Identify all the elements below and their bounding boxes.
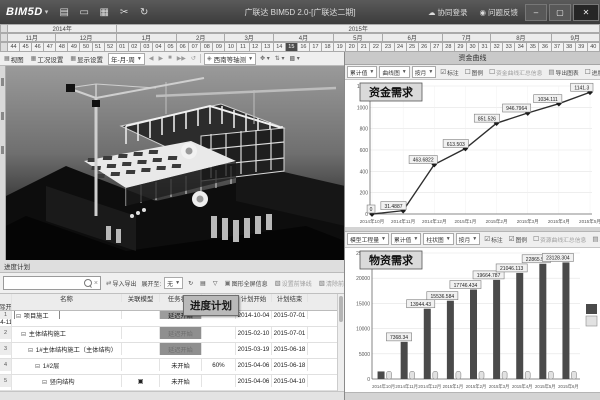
timeline-week-cell[interactable]: 20 (346, 42, 358, 52)
tree-collapse-icon[interactable]: ⊟ (42, 380, 47, 386)
svg-text:946.7964: 946.7964 (506, 107, 527, 113)
summary-checkbox[interactable]: ☐资金曲线汇总信息 (487, 67, 544, 78)
timeline-week-cell[interactable]: 18 (322, 42, 334, 52)
svg-text:1141.3: 1141.3 (574, 86, 589, 92)
timeline-week-cell[interactable]: 49 (68, 42, 80, 52)
timeline-week-cell[interactable]: 16 (298, 42, 310, 52)
timeline-months-cell[interactable]: 4月 (274, 33, 334, 42)
header-rownum (0, 294, 12, 302)
timeline-week-cell[interactable]: 45 (20, 42, 32, 52)
status-badge: 未开始 (160, 359, 202, 371)
legend-checkbox[interactable]: ☑图例 (507, 234, 529, 245)
timeline-week-cell[interactable]: 50 (80, 42, 92, 52)
playback-controls: ◀▶■▶▶↺ (148, 55, 197, 62)
timeline-week-cell[interactable]: 06 (177, 42, 189, 52)
svg-text:15536.584: 15536.584 (431, 294, 455, 300)
chevron-down-icon: ▼ (175, 280, 180, 286)
timeline-week-cell[interactable]: 47 (44, 42, 56, 52)
svg-text:2015年4月: 2015年4月 (548, 218, 570, 225)
expand-label: 展开至: (141, 279, 161, 288)
clear-search-icon[interactable]: × (94, 280, 98, 287)
actual-start-cell (0, 339, 12, 342)
task-name-cell: ⊟ 竖向结构 (12, 375, 122, 387)
status-badge: 延迟开始 (160, 343, 202, 355)
timeline-week-cell[interactable]: 40 (588, 42, 600, 52)
table-horizontal-scrollbar[interactable] (0, 391, 344, 400)
playback-first-icon[interactable]: ◀ (148, 55, 155, 62)
timeline-months-cell[interactable]: 1月 (117, 33, 177, 42)
export-chart-button[interactable]: ▤导出图表 (590, 234, 600, 245)
column-header[interactable]: 计划开始 (236, 294, 272, 302)
filter-button[interactable]: ▽ (211, 279, 220, 288)
print-button[interactable]: ▤ (198, 279, 208, 288)
progress-toggle[interactable]: ☐进度 (583, 67, 600, 78)
value-mode-dropdown[interactable]: 累计值▼ (391, 233, 421, 245)
expand-dropdown[interactable]: 无▼ (164, 277, 183, 289)
checkbox-empty-icon: ☐ (465, 68, 471, 76)
titlebar: BIM5D ▾ ▤▭▦✂↻ 广联达 BIM5D 2.0-[广联达二期] ☁ 协同… (0, 0, 600, 24)
task-name: ⊟ 主体结构施工 (21, 329, 66, 338)
gear-icon: ▦ (31, 55, 37, 62)
timeline-week-cell[interactable]: 11 (237, 42, 249, 52)
funds-panel-header[interactable]: 资金曲线 (345, 52, 600, 65)
plan-start-cell: 2015-02-10 (236, 327, 272, 339)
timeline-months-cell[interactable]: 9月 (552, 33, 600, 42)
svg-text:0: 0 (370, 208, 373, 214)
extra-cell: 60% (202, 359, 236, 371)
actual-start-cell (0, 387, 12, 390)
svg-text:1034.111: 1034.111 (538, 97, 558, 103)
tree-collapse-icon[interactable]: ⊟ (35, 364, 40, 370)
plan-start-cell: 2014-10-04 (236, 311, 272, 319)
timeline-week-cell[interactable]: 37 (552, 42, 564, 52)
checkbox-empty-icon: ☐ (585, 68, 591, 76)
svg-text:800: 800 (360, 127, 369, 133)
frontline-clear-icon: ▧ (319, 279, 325, 287)
export-chart-button[interactable]: ▤导出图表 (546, 67, 580, 78)
extra-cell (202, 375, 236, 387)
timeline-edge (0, 24, 8, 33)
viewport-tool-group: ✥ ▾⇅ ▾▩ ▾ (259, 55, 301, 62)
timeline-week-cell[interactable]: 48 (56, 42, 68, 52)
timeline-edge (0, 42, 8, 52)
chevron-down-icon: ▼ (248, 56, 253, 62)
materials-toolbar: 模型工程量▼ 累计值▼ 柱状图▼ 按月▼ ☑标注 ☑图例 ☐资源曲线汇总信息 ▤… (345, 232, 600, 248)
model-link-cell (122, 359, 160, 371)
timeline-week-cell[interactable]: 05 (165, 42, 177, 52)
new-file-icon[interactable]: ▤ (56, 4, 72, 20)
column-header[interactable]: 关联模型 (122, 294, 160, 302)
schedule-table: 名称关联模型任务状态计划开始计划结束实际开始1⊟ 项目施工延迟开始2014-10… (0, 294, 337, 391)
svg-text:13944.43: 13944.43 (410, 302, 431, 308)
tree-collapse-icon[interactable]: ⊟ (16, 314, 21, 320)
import-export-button[interactable]: ⇄导入导出 (104, 278, 138, 289)
viewport-tool-1-icon[interactable]: ✥ ▾ (259, 55, 271, 62)
timeline-week-cell[interactable]: 39 (576, 42, 588, 52)
table-vertical-scrollbar[interactable] (337, 294, 344, 391)
dragged-column-ghost: 进度计划 (183, 295, 239, 316)
timeline-week-cell[interactable]: 33 (503, 42, 515, 52)
plan-end-cell: 2015-07-01 (272, 311, 308, 319)
extra-cell (202, 343, 236, 355)
timeline-week-cell[interactable]: 14 (274, 42, 286, 52)
extra-cell (202, 327, 236, 339)
timeline-week-cell[interactable]: 36 (539, 42, 551, 52)
timeline-week-cell[interactable]: 01 (117, 42, 129, 52)
table-row[interactable]: 1⊟ 项目施工延迟开始2014-10-042015-07-012014-11-0… (0, 311, 337, 327)
period-dropdown[interactable]: 按月▼ (412, 66, 437, 78)
timeline-week-cell[interactable]: 44 (8, 42, 20, 52)
timeline-week-cell[interactable]: 09 (213, 42, 225, 52)
model-link-cell: ▣ (122, 375, 160, 387)
svg-text:2015年2月: 2015年2月 (466, 383, 487, 390)
mark-checkbox[interactable]: ☑标注 (482, 234, 504, 245)
task-name-cell: ⊟ 主体结构施工 (12, 327, 122, 339)
timeline-week-cell[interactable]: 30 (467, 42, 479, 52)
svg-text:2014年11月: 2014年11月 (395, 383, 418, 390)
status-badge: 延迟开始 (160, 327, 202, 339)
timeline-edge (0, 33, 8, 42)
bim5d-window: BIM5D ▾ ▤▭▦✂↻ 广联达 BIM5D 2.0-[广联达二期] ☁ 协同… (0, 0, 600, 400)
timeline-week-cell[interactable]: 25 (407, 42, 419, 52)
timeline-months-cell[interactable]: 2月 (177, 33, 225, 42)
task-name: ⊟ 1#主体结构施工（主体结构） (28, 345, 117, 354)
timeline-months-cell[interactable]: 11月 (8, 33, 56, 42)
svg-text:2015年1月: 2015年1月 (443, 383, 464, 390)
svg-text:2015年2月: 2015年2月 (486, 218, 508, 225)
table-row[interactable]: 5⊟ 竖向结构▣未开始2015-04-062015-04-10 (0, 375, 337, 391)
period-dropdown[interactable]: 按月▼ (456, 233, 481, 245)
timeline-week-cell[interactable]: 26 (419, 42, 431, 52)
timeline-week-cell[interactable]: 27 (431, 42, 443, 52)
timeline-week-cell[interactable]: 02 (129, 42, 141, 52)
svg-text:20000: 20000 (356, 276, 370, 282)
timeline-week-cell[interactable]: 03 (141, 42, 153, 52)
timeline-week-cell[interactable]: 31 (479, 42, 491, 52)
svg-text:23128.304: 23128.304 (546, 255, 570, 261)
table-row[interactable]: 4⊟ 1#2层未开始60%2015-04-062015-06-18 (0, 359, 337, 375)
actual-start-cell (0, 371, 12, 374)
model-link-cell (122, 311, 160, 319)
funds-toolbar: 累计值▼ 曲线图▼ 按月▼ ☑标注 ☐图例 ☐资金曲线汇总信息 ▤导出图表 ☐进… (345, 65, 600, 81)
close-button[interactable]: ✕ (573, 4, 599, 21)
timeline-week-cell[interactable]: 08 (201, 42, 213, 52)
row-number: 5 (0, 375, 12, 387)
task-name: ⊟ 1#2层 (35, 361, 59, 370)
funds-demand-chart: 0200400600800100012002014年10月2014年11月201… (345, 80, 600, 227)
plan-end-cell: 2015-06-18 (272, 359, 308, 371)
table-row[interactable]: 3⊟ 1#主体结构施工（主体结构）延迟开始2015-03-192015-06-1… (0, 343, 337, 359)
plan-end-cell: 2015-04-10 (272, 375, 308, 387)
simulation-toolbar: ▦视图 ▦工况设置 ▦显示设置 年-月-周▼ ◀▶■▶▶↺ ◈ 西南等轴测 ▼ … (0, 52, 344, 66)
mark-checkbox[interactable]: ☑标注 (438, 67, 460, 78)
model-link-cell (122, 327, 160, 339)
task-name-cell: ⊟ 1#2层 (12, 359, 122, 371)
link-icon: ▣ (224, 279, 230, 287)
actual-start-cell (0, 355, 12, 358)
svg-text:21046.113: 21046.113 (500, 266, 523, 272)
status-badge: 未开始 (160, 375, 202, 387)
svg-text:1000: 1000 (357, 106, 368, 112)
task-name: ⊟ 项目施工 (14, 311, 60, 319)
svg-text:2015年3月: 2015年3月 (517, 218, 539, 225)
set-frontline-button[interactable]: ▧设置前锋线 (273, 278, 314, 289)
legend-checkbox[interactable]: ☐图例 (463, 67, 485, 78)
search-input[interactable] (4, 277, 82, 289)
svg-text:851.526: 851.526 (478, 117, 496, 123)
tree-collapse-icon[interactable]: ⊟ (21, 332, 26, 338)
timeline-months-cell[interactable]: 6月 (383, 33, 443, 42)
svg-text:613.503: 613.503 (447, 142, 465, 148)
svg-text:19664.787: 19664.787 (477, 273, 501, 279)
compass-icon: ◈ (207, 55, 212, 62)
plan-start-cell: 2015-04-06 (236, 359, 272, 371)
task-name: ⊟ 竖向结构 (42, 377, 75, 386)
timeline-week-cell[interactable]: 13 (262, 42, 274, 52)
plan-start-cell: 2015-04-06 (236, 375, 272, 387)
timeline-months-cell[interactable]: 5月 (334, 33, 382, 42)
minimize-button[interactable]: – (525, 4, 547, 21)
schedule-toolbar: × ⇄导入导出 展开至: 无▼ ↻ ▤ ▽ ▣图形全屏信息 ▧设置前锋线 ▧清除… (0, 273, 344, 294)
timeline-week-cell[interactable]: 51 (93, 42, 105, 52)
svg-text:15000: 15000 (356, 301, 370, 307)
grid-icon: ▦ (4, 55, 10, 62)
timeline-week-cell[interactable]: 24 (395, 42, 407, 52)
timeline-years-cell[interactable]: 2015年 (117, 24, 600, 33)
titlebar-icon-group: ▤▭▦✂↻ (54, 4, 154, 20)
quantity-source-dropdown[interactable]: 模型工程量▼ (347, 233, 389, 245)
svg-text:2014年10月: 2014年10月 (360, 218, 385, 225)
svg-text:600: 600 (360, 148, 369, 154)
svg-text:5000: 5000 (359, 352, 370, 358)
timeline-week-cell[interactable]: 15 (286, 42, 298, 52)
svg-text:物资需求: 物资需求 (369, 253, 414, 267)
svg-text:2014年12月: 2014年12月 (422, 218, 447, 225)
timeline-week-cell[interactable]: 28 (443, 42, 455, 52)
svg-text:2014年12月: 2014年12月 (418, 383, 441, 390)
schedule-panel: 进度计划 × ⇄导入导出 展开至: 无▼ ↻ ▤ ▽ ▣图形全屏信息 ▧设置前锋… (0, 260, 344, 400)
tools-icon[interactable]: ✂ (116, 4, 132, 20)
model-link-cell (122, 343, 160, 355)
chart-type-dropdown[interactable]: 柱状图▼ (423, 233, 453, 245)
svg-text:2014年10月: 2014年10月 (372, 383, 395, 390)
svg-text:2015年1月: 2015年1月 (454, 218, 476, 225)
timeline-week-cell[interactable]: 12 (250, 42, 262, 52)
playback-stop-icon[interactable]: ■ (167, 55, 173, 62)
model-viewport-3d[interactable] (6, 66, 344, 260)
column-header[interactable]: 实际开始 (0, 302, 12, 310)
svg-text:17746.434: 17746.434 (454, 282, 478, 288)
checkbox-checked-icon: ☑ (440, 68, 446, 76)
timeline-months-cell[interactable]: 12月 (56, 33, 116, 42)
camera-view-dropdown[interactable]: ◈ 西南等轴测 ▼ (204, 53, 256, 65)
timeline-week-cell[interactable]: 46 (32, 42, 44, 52)
svg-text:31.4887: 31.4887 (384, 204, 402, 210)
open-folder-icon[interactable]: ▭ (76, 4, 92, 20)
feedback-icon: ◉ (479, 8, 486, 17)
timeline-week-cell[interactable]: 07 (189, 42, 201, 52)
playback-loop-icon[interactable]: ↺ (190, 55, 197, 62)
building-model-render (6, 66, 344, 260)
feedback-button[interactable]: ◉ 问题反馈 (479, 7, 518, 18)
materials-demand-chart: 05000100001500020000250002014年10月2014年11… (345, 248, 600, 392)
timeline-week-cell[interactable]: 35 (527, 42, 539, 52)
svg-text:0: 0 (367, 377, 370, 383)
timeline-months-cell[interactable]: 8月 (491, 33, 551, 42)
maximize-button[interactable]: ▢ (549, 4, 571, 21)
link-info-button[interactable]: ▣图形全屏信息 (222, 278, 269, 289)
actual-start-cell: 2014-11-04 (0, 319, 12, 326)
viewport-tool-2-icon[interactable]: ⇅ ▾ (274, 55, 286, 62)
timeline-week-cell[interactable]: 34 (515, 42, 527, 52)
table-header-row: 名称关联模型任务状态计划开始计划结束实际开始 (0, 294, 337, 311)
gantt-timeline: 2014年2015年 11月12月1月2月3月4月5月6月7月8月9月 4445… (0, 24, 600, 53)
condition-settings-button[interactable]: ▦工况设置 (29, 54, 66, 64)
search-icon (84, 279, 92, 287)
svg-text:200: 200 (360, 191, 369, 197)
svg-text:2015年5月: 2015年5月 (535, 383, 556, 390)
view-menu[interactable]: ▦视图 (2, 54, 26, 64)
viewport-tool-3-icon[interactable]: ▩ ▾ (288, 55, 300, 62)
import-export-icon: ⇄ (106, 279, 111, 287)
app-logo[interactable]: BIM5D (6, 6, 43, 18)
row-number: 4 (0, 359, 12, 371)
column-header[interactable]: 名称 (12, 294, 122, 302)
table-row[interactable]: 2⊟ 主体结构施工延迟开始2015-02-102015-07-01 (0, 327, 337, 343)
logo-dropdown-caret[interactable]: ▾ (45, 8, 49, 16)
timeline-week-cell[interactable]: 17 (310, 42, 322, 52)
tree-collapse-icon[interactable]: ⊟ (28, 348, 33, 354)
chevron-down-icon: ▼ (137, 56, 142, 62)
svg-text:463.6822: 463.6822 (413, 158, 434, 164)
search-box: × (3, 276, 101, 290)
column-header[interactable]: 计划结束 (272, 294, 308, 302)
save-icon[interactable]: ▦ (96, 4, 112, 20)
display-icon: ▦ (70, 55, 76, 62)
svg-text:2015年6月: 2015年6月 (558, 383, 579, 390)
timeline-week-cell[interactable]: 21 (358, 42, 370, 52)
frontline-icon: ▧ (275, 279, 281, 287)
schedule-panel-title: 进度计划 (0, 260, 344, 273)
timeline-months-cell[interactable]: 3月 (225, 33, 273, 42)
refresh-button[interactable]: ↻ (186, 279, 195, 288)
svg-text:400: 400 (360, 170, 369, 176)
svg-text:资金需求: 资金需求 (369, 85, 414, 99)
plan-end-cell: 2015-06-18 (272, 343, 308, 355)
plan-start-cell: 2015-03-19 (236, 343, 272, 355)
task-name-cell: ⊟ 项目施工 (12, 311, 122, 319)
row-number: 3 (0, 343, 12, 355)
svg-text:2015年5月: 2015年5月 (579, 218, 600, 225)
timeline-months-cell[interactable]: 7月 (443, 33, 491, 42)
row-number: 1 (0, 311, 12, 319)
clear-frontline-button[interactable]: ▧清除前锋线 (317, 278, 344, 289)
task-name-cell: ⊟ 1#主体结构施工（主体结构） (12, 343, 122, 355)
summary-checkbox[interactable]: ☐资源曲线汇总信息 (531, 234, 588, 245)
timeline-week-cell[interactable]: 04 (153, 42, 165, 52)
panel-bottom-strip (345, 392, 600, 400)
svg-text:7368.34: 7368.34 (390, 335, 408, 341)
timeline-week-cell[interactable]: 29 (455, 42, 467, 52)
timeline-week-cell[interactable]: 10 (225, 42, 237, 52)
timeline-years-cell[interactable]: 2014年 (8, 24, 117, 33)
plan-end-cell: 2015-07-01 (272, 327, 308, 339)
svg-text:2015年3月: 2015年3月 (489, 383, 510, 390)
sync-icon[interactable]: ↻ (136, 4, 152, 20)
svg-text:2015年4月: 2015年4月 (512, 383, 533, 390)
svg-text:10000: 10000 (356, 326, 370, 332)
timeline-week-cell[interactable]: 22 (370, 42, 382, 52)
timeline-week-cell[interactable]: 38 (564, 42, 576, 52)
speed-dropdown[interactable]: 年-月-周▼ (108, 53, 145, 65)
playback-last-icon[interactable]: ▶▶ (176, 55, 187, 62)
svg-text:2014年11月: 2014年11月 (391, 218, 415, 225)
timeline-week-cell[interactable]: 23 (382, 42, 394, 52)
value-mode-dropdown[interactable]: 累计值▼ (347, 66, 377, 78)
timeline-week-cell[interactable]: 52 (105, 42, 117, 52)
timeline-week-cell[interactable]: 19 (334, 42, 346, 52)
display-settings-button[interactable]: ▦显示设置 (68, 54, 105, 64)
playback-play-icon[interactable]: ▶ (157, 55, 164, 62)
export-icon: ▤ (548, 68, 554, 76)
collab-login-button[interactable]: ☁ 协同登录 (428, 7, 468, 18)
chart-type-dropdown[interactable]: 曲线图▼ (379, 66, 409, 78)
row-number: 2 (0, 327, 12, 339)
timeline-week-cell[interactable]: 32 (491, 42, 503, 52)
cloud-icon: ☁ (428, 8, 436, 17)
